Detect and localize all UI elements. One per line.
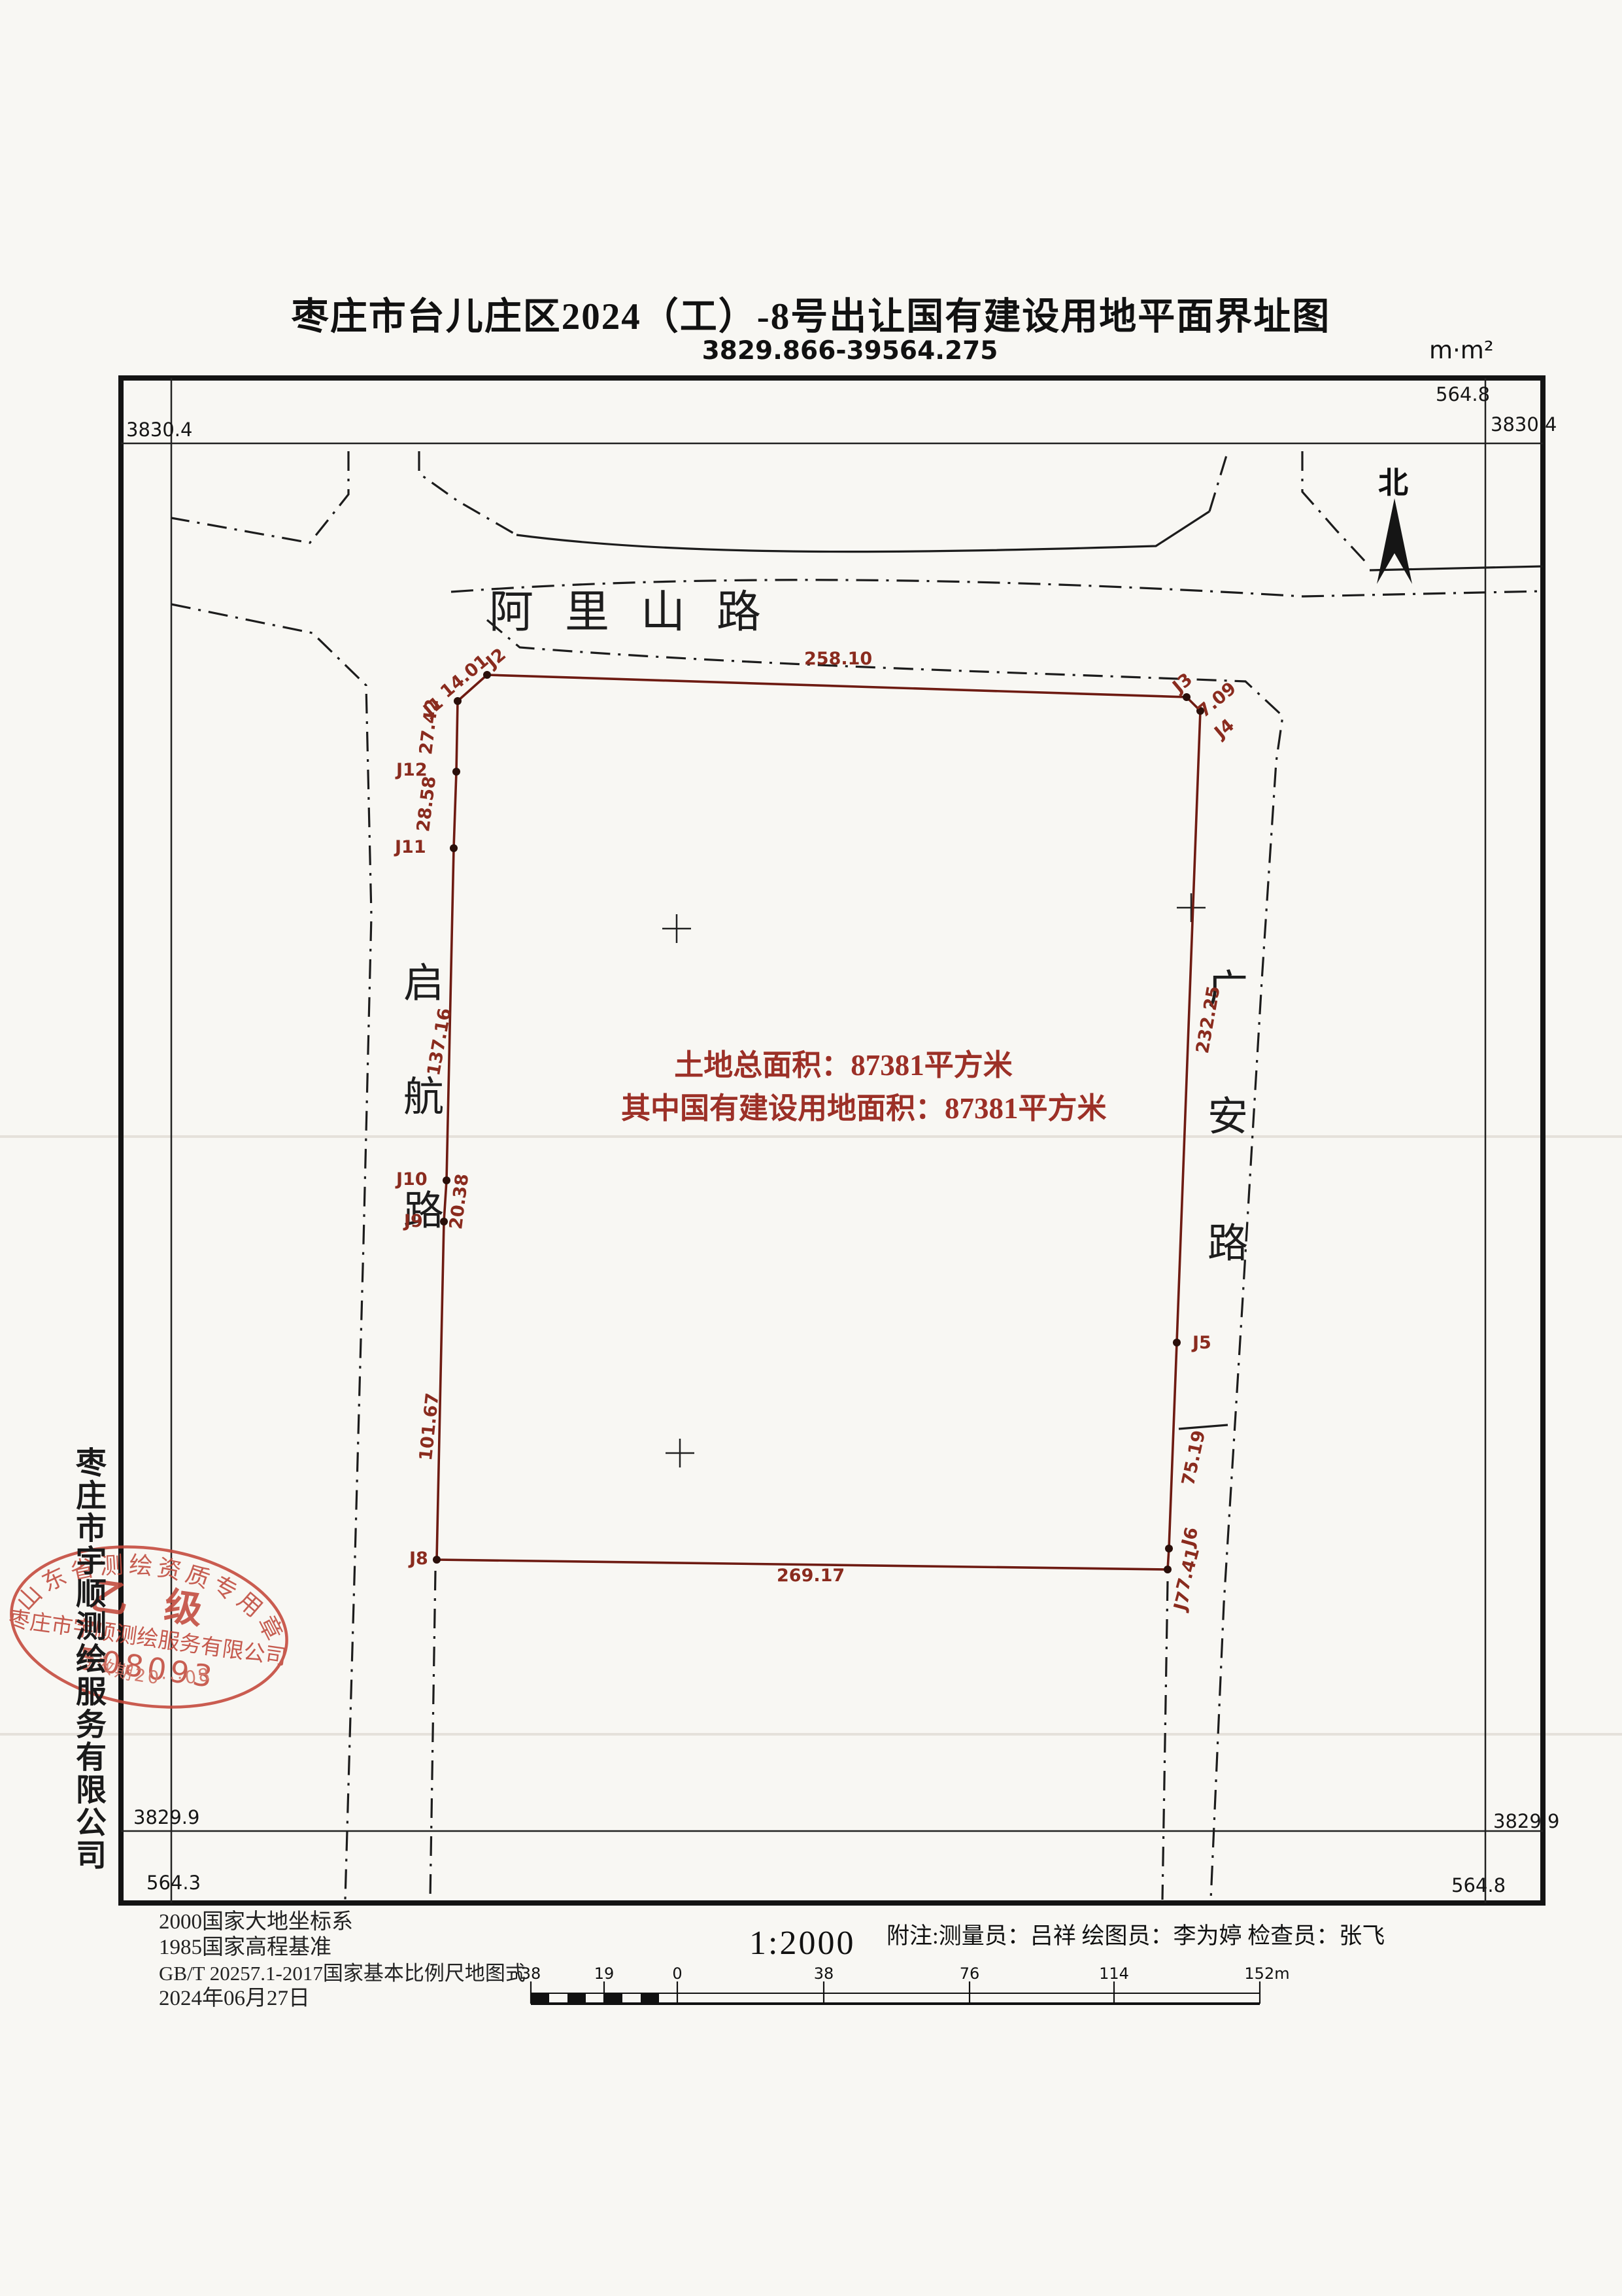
scale-bar-label: 19 (594, 1964, 615, 1983)
datum-line: 2000国家大地坐标系 (159, 1910, 526, 1935)
grid-label-easting-bottom-right: 564.8 (1451, 1874, 1506, 1896)
company-stamp: 山东省测绘资质专用章 乙 级 枣庄市宇顺测绘服务有限公司 508093 有效期2… (0, 1530, 299, 1724)
road-edge-guangan-west-north (1209, 451, 1228, 511)
point-label-j11: J11 (395, 837, 426, 857)
grid-cross (666, 1439, 694, 1467)
grid-label-easting-bottom-left: 564.3 (146, 1872, 201, 1894)
grid-label-northing-top-left: 3830.4 (126, 419, 192, 441)
parcel-area-line1: 土地总面积：87381平方米 (621, 1044, 1066, 1087)
north-arrow-icon (1377, 498, 1412, 584)
length-label-j2-j3: 258.10 (804, 649, 872, 669)
scale-bar-label: 76 (960, 1964, 980, 1983)
scale-bar: m 38 19 0 38 76 114 152m (510, 1964, 1290, 2004)
page-subtitle-coordinates: 3829.866-39564.275 (647, 336, 1053, 366)
scale-bar-label: 152m (1244, 1964, 1289, 1983)
road-edge-alishan-north-east-of-west-road (419, 451, 516, 535)
datum-line: GB/T 20257.1-2017国家基本比例尺地图式 (159, 1961, 526, 1986)
parcel-area-line2: 其中国有建设用地面积：87381平方米 (621, 1087, 1066, 1130)
scanned-cadastral-map-page: m 38 19 0 38 76 114 152m 山东省测绘资质专用章 乙 级 … (0, 0, 1622, 2296)
scale-bar-label: 114 (1099, 1964, 1129, 1983)
point-label-j8: J8 (409, 1549, 428, 1569)
grid-cross (662, 914, 691, 943)
grid-cross (1177, 893, 1206, 922)
scale-bar-label: 38 (814, 1964, 834, 1983)
scale-bar-label: 0 (672, 1964, 682, 1983)
point-label-j5: J5 (1192, 1333, 1211, 1353)
point-label-j10: J10 (396, 1169, 428, 1190)
grid-label-northing-bottom-right: 3829.9 (1493, 1810, 1559, 1832)
datum-info-block: 2000国家大地坐标系 1985国家高程基准 GB/T 20257.1-2017… (159, 1910, 526, 2012)
measure-tick (1179, 1425, 1228, 1429)
grid-label-northing-bottom-left: 3829.9 (133, 1806, 199, 1828)
grid-label-easting-top-right: 564.8 (1436, 383, 1490, 405)
road-edge-alishan-south (487, 620, 1283, 1900)
road-edge-west-north (171, 451, 348, 543)
unit-note: m·m² (1429, 336, 1494, 364)
road-edge-guangan-east-north (1302, 451, 1370, 566)
surveying-company-name-vertical: 枣庄市宇顺测绘服务有限公司 (65, 1447, 110, 1872)
surveyor-notes: 附注:测量员：吕祥 绘图员：李为婷 检查员：张飞 (887, 1917, 1385, 1951)
road-name-alishan: 阿里山路 (489, 575, 792, 640)
parcel-area-text: 土地总面积：87381平方米 其中国有建设用地面积：87381平方米 (621, 1044, 1066, 1130)
road-edge-continuation-south-east (1162, 1581, 1168, 1900)
map-frame (121, 378, 1543, 1903)
map-scale-text: 1:2000 (749, 1924, 855, 1962)
road-edge-alishan-north (516, 511, 1209, 552)
page-title: 枣庄市台儿庄区2024（工）-8号出让国有建设用地平面界址图 (0, 286, 1622, 340)
point-label-j9: J9 (404, 1211, 423, 1231)
length-label-j7-j8: 269.17 (777, 1566, 845, 1586)
datum-line: 1985国家高程基准 (159, 1935, 526, 1961)
north-label: 北 (1378, 459, 1408, 502)
road-edge-alishan-north-east-section (1370, 566, 1543, 570)
grid-label-northing-top-right: 3830.4 (1491, 413, 1557, 436)
datum-line: 2024年06月27日 (159, 1986, 526, 2012)
